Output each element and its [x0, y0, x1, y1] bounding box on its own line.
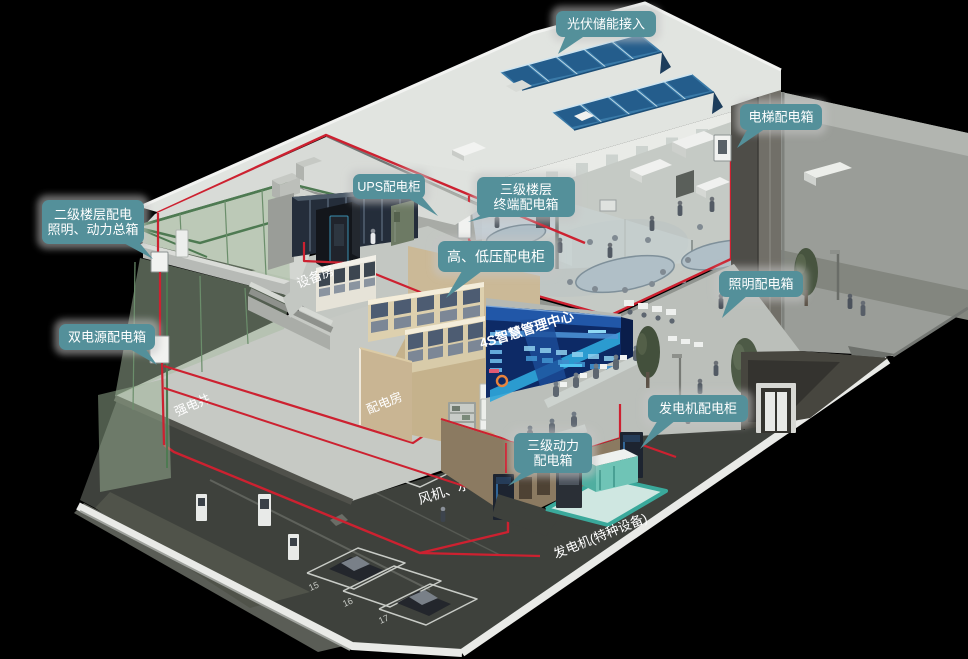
svg-text:发电机配电柜: 发电机配电柜 — [659, 401, 737, 416]
svg-text:电梯配电箱: 电梯配电箱 — [748, 110, 813, 125]
svg-text:光伏储能接入: 光伏储能接入 — [567, 17, 645, 32]
svg-text:高、低压配电柜: 高、低压配电柜 — [447, 249, 545, 265]
svg-text:二级楼层配电: 二级楼层配电 — [54, 207, 132, 222]
svg-text:UPS配电柜: UPS配电柜 — [357, 180, 420, 194]
svg-text:照明配电箱: 照明配电箱 — [728, 277, 793, 292]
svg-text:配电箱: 配电箱 — [533, 453, 572, 468]
svg-text:终端配电箱: 终端配电箱 — [493, 197, 558, 212]
svg-text:三级楼层: 三级楼层 — [500, 182, 552, 197]
svg-text:照明、动力总箱: 照明、动力总箱 — [47, 222, 138, 237]
svg-text:双电源配电箱: 双电源配电箱 — [68, 330, 146, 345]
svg-text:三级动力: 三级动力 — [527, 438, 579, 453]
